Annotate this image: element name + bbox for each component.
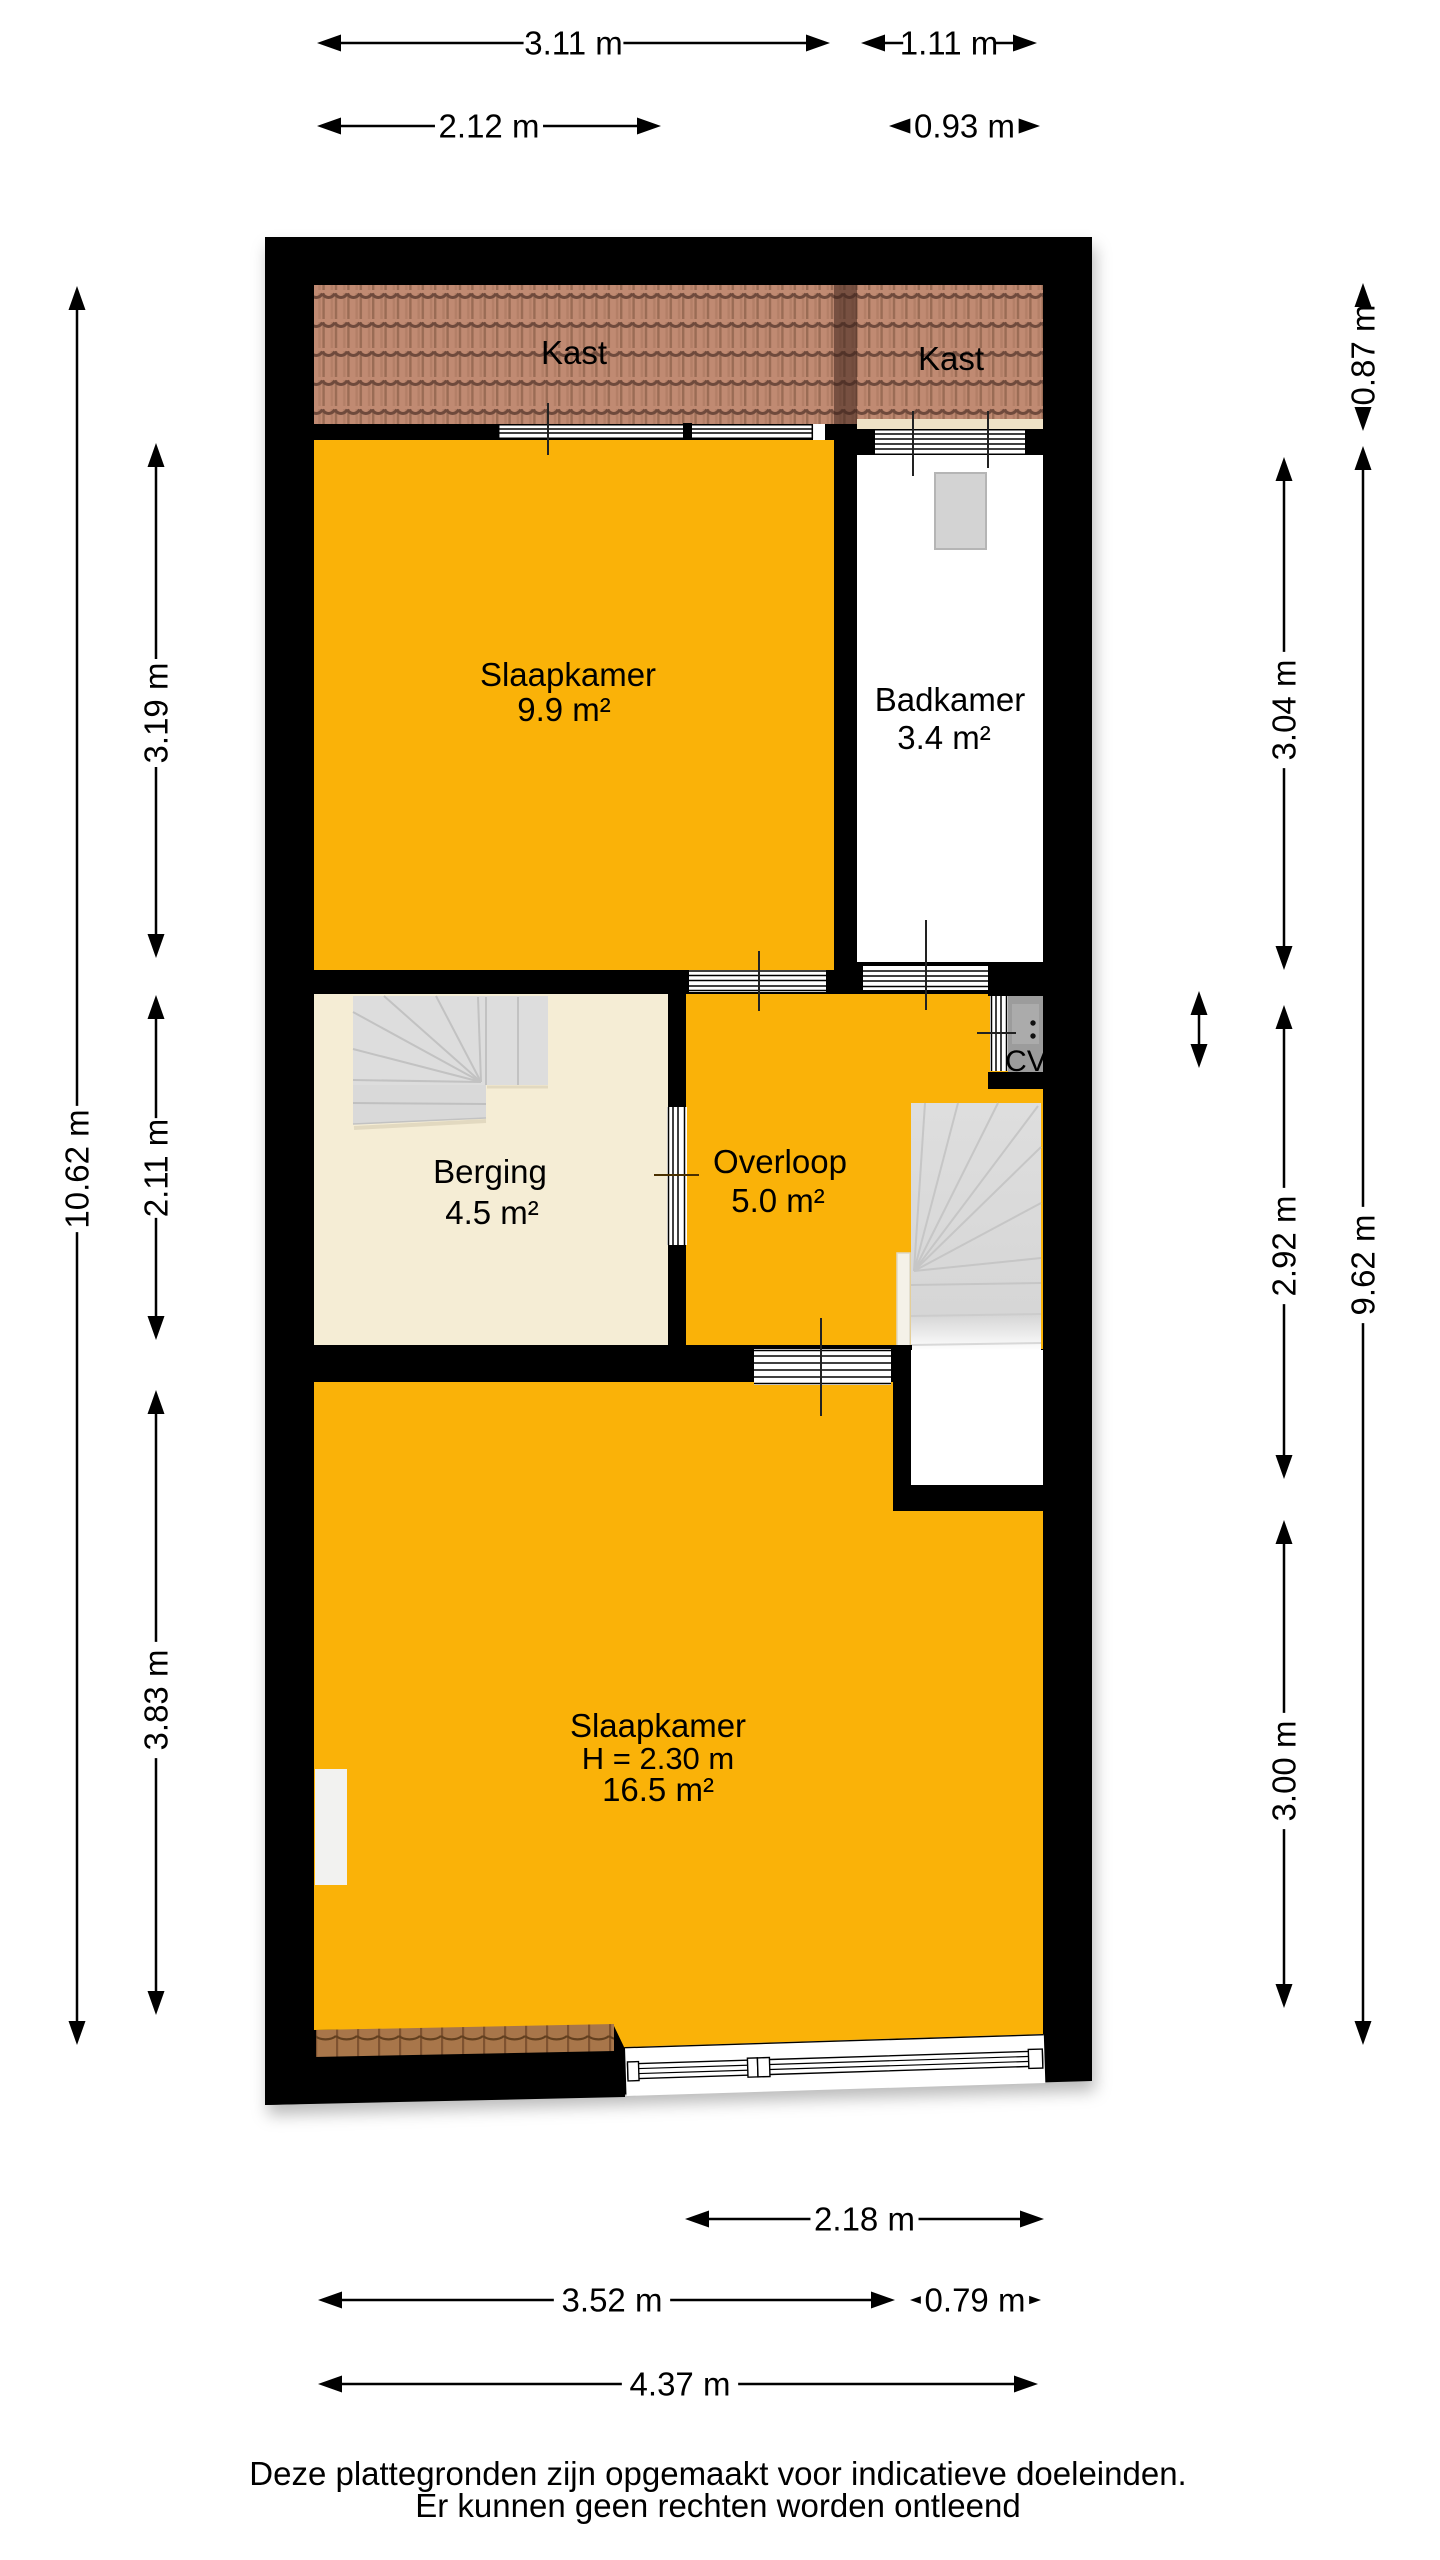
svg-text:2.92 m: 2.92 m	[1266, 1196, 1303, 1297]
svg-text:2.11 m: 2.11 m	[138, 1119, 175, 1217]
svg-text:3.11 m: 3.11 m	[524, 25, 622, 62]
svg-text:Slaapkamer: Slaapkamer	[480, 656, 656, 693]
svg-text:9.62 m: 9.62 m	[1345, 1215, 1382, 1316]
svg-text:Er kunnen geen rechten worden: Er kunnen geen rechten worden ontleend	[415, 2487, 1020, 2524]
svg-text:3.4 m²: 3.4 m²	[897, 719, 991, 756]
svg-text:0.79 m: 0.79 m	[925, 2282, 1026, 2319]
svg-text:3.83 m: 3.83 m	[138, 1650, 175, 1751]
svg-text:Kast: Kast	[541, 334, 607, 371]
svg-text:3.00 m: 3.00 m	[1266, 1721, 1303, 1822]
svg-text:10.62 m: 10.62 m	[59, 1109, 96, 1228]
svg-text:4.5 m²: 4.5 m²	[445, 1194, 539, 1231]
svg-text:0.93 m: 0.93 m	[914, 108, 1015, 145]
svg-text:3.52 m: 3.52 m	[562, 2282, 663, 2319]
svg-text:3.19 m: 3.19 m	[138, 663, 175, 764]
svg-text:Badkamer: Badkamer	[875, 681, 1025, 718]
svg-text:16.5 m²: 16.5 m²	[602, 1771, 714, 1808]
svg-text:4.37 m: 4.37 m	[630, 2366, 731, 2403]
svg-text:Berging: Berging	[433, 1153, 547, 1190]
svg-text:9.9 m²: 9.9 m²	[517, 691, 611, 728]
svg-text:2.12 m: 2.12 m	[439, 108, 540, 145]
svg-text:5.0 m²: 5.0 m²	[731, 1182, 825, 1219]
svg-text:Slaapkamer: Slaapkamer	[570, 1707, 746, 1744]
svg-text:3.04 m: 3.04 m	[1266, 660, 1303, 761]
svg-text:0.87 m: 0.87 m	[1345, 305, 1382, 406]
svg-text:2.18 m: 2.18 m	[814, 2201, 915, 2238]
svg-text:Kast: Kast	[918, 340, 984, 377]
svg-text:Overloop: Overloop	[713, 1143, 847, 1180]
svg-text:1.11 m: 1.11 m	[900, 25, 998, 62]
